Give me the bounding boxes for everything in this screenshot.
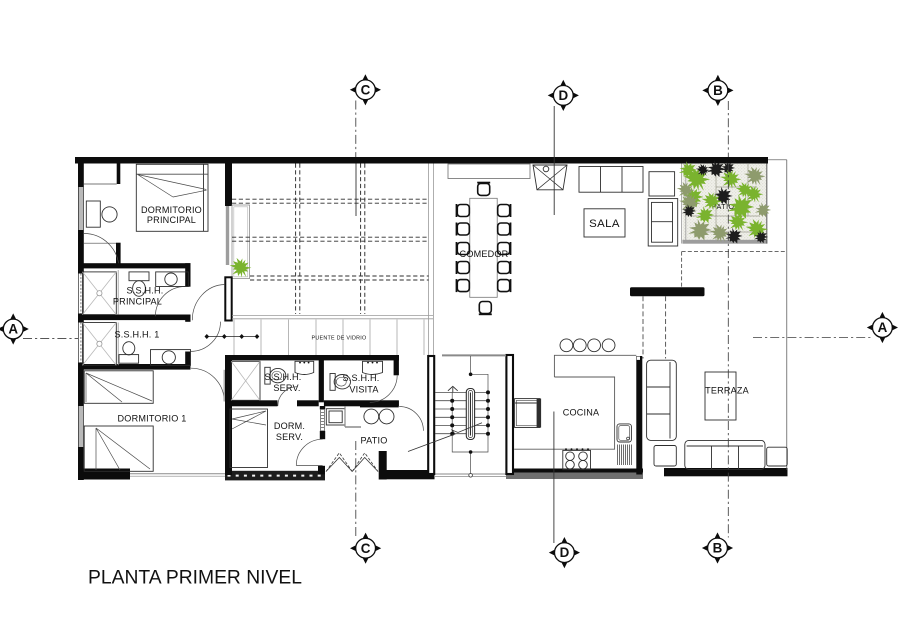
svg-text:A: A — [8, 322, 18, 337]
svg-text:DORMITORIO: DORMITORIO — [141, 205, 202, 215]
svg-text:A: A — [878, 320, 888, 335]
svg-text:DORM.: DORM. — [274, 421, 305, 431]
svg-text:S.S.H.H.: S.S.H.H. — [343, 373, 380, 383]
svg-text:D: D — [560, 545, 570, 560]
svg-text:D: D — [558, 88, 568, 103]
svg-text:DORMITORIO 1: DORMITORIO 1 — [118, 414, 187, 424]
svg-text:C: C — [361, 82, 371, 97]
svg-text:S.S.H.H.: S.S.H.H. — [127, 286, 164, 296]
svg-text:PRINCIPAL: PRINCIPAL — [113, 297, 162, 307]
svg-text:B: B — [713, 541, 723, 556]
svg-text:B: B — [713, 83, 723, 98]
svg-text:SALA: SALA — [589, 218, 620, 230]
svg-text:PUENTE DE VIDRIO: PUENTE DE VIDRIO — [312, 335, 367, 341]
svg-text:COCINA: COCINA — [563, 407, 600, 417]
svg-text:C: C — [361, 541, 371, 556]
svg-text:SERV.: SERV. — [276, 432, 303, 442]
svg-text:TERRAZA: TERRAZA — [705, 385, 750, 395]
svg-text:COMEDOR: COMEDOR — [460, 249, 509, 259]
svg-text:PATIO: PATIO — [361, 436, 388, 446]
svg-text:SERV.: SERV. — [273, 383, 300, 393]
svg-text:VISITA: VISITA — [349, 384, 379, 394]
svg-text:S.S.H.H.: S.S.H.H. — [265, 372, 302, 382]
svg-text:S.S.H.H. 1: S.S.H.H. 1 — [115, 330, 160, 340]
svg-text:PRINCIPAL: PRINCIPAL — [147, 215, 196, 225]
svg-text:PLANTA PRIMER NIVEL: PLANTA PRIMER NIVEL — [88, 568, 302, 589]
